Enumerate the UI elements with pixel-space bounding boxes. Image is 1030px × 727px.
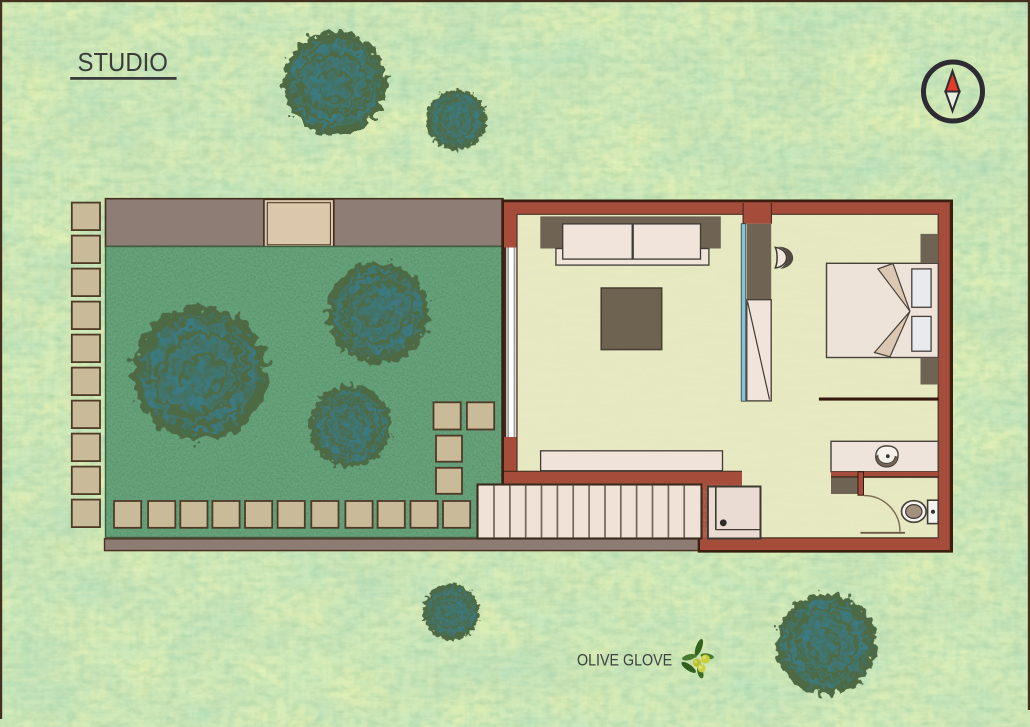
svg-text:STUDIO: STUDIO (78, 48, 168, 77)
svg-text:OLIVE GLOVE: OLIVE GLOVE (577, 651, 672, 669)
